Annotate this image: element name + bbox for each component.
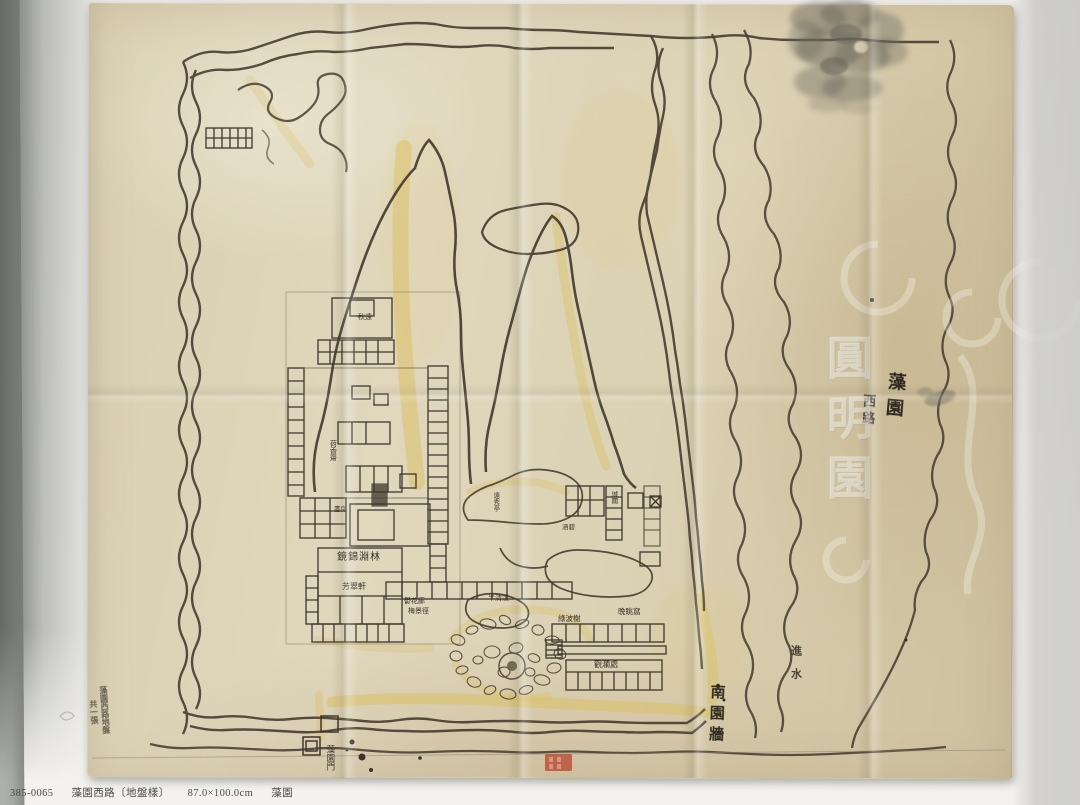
label-hall-guanlan: 觀瀾處 — [594, 661, 618, 669]
map-drawing — [0, 0, 1080, 805]
caption-title: 藻園西路〔地盤樣〕 — [71, 788, 169, 799]
label-main-hall: 鏡錦淵林 — [337, 553, 381, 564]
label-pavilion-hanbi: 涵碧 — [562, 524, 575, 531]
crease-line — [92, 750, 1006, 758]
book-page — [19, 0, 1080, 805]
label-hall-banqingyang: 半清漾 — [488, 595, 509, 602]
caption-dimensions: 87.0×100.0cm — [188, 788, 254, 799]
garden-outer-wall — [179, 23, 939, 734]
label-studio-wantiao: 晚眺窩 — [618, 608, 641, 616]
mountain-ridges — [314, 140, 636, 492]
label-room-note: 書房 — [334, 506, 347, 513]
ink-dots — [346, 298, 908, 772]
corridor-ladder — [428, 366, 448, 544]
label-hall-fangcui: 芳翠軒 — [342, 583, 366, 591]
fold-crease — [682, 4, 708, 778]
ponds — [463, 470, 652, 629]
red-seal — [545, 754, 572, 771]
label-hall-north: 秋遠 — [358, 314, 372, 321]
gate-structure — [303, 716, 338, 755]
label-pavilion-lvbo: 綠波榭 — [558, 615, 581, 623]
caption: 385-0065 藻園西路〔地盤樣〕 87.0×100.0cm 藻園 — [10, 785, 308, 800]
label-gate-south: 藻園門 — [325, 745, 334, 771]
label-pavilion-yuanxiu: 遠秀亭 — [492, 492, 499, 512]
round-pavilion — [499, 653, 525, 679]
river-and-road-lines — [150, 30, 956, 755]
fold-crease — [857, 4, 883, 778]
label-gate-tower: 城關 — [610, 491, 617, 504]
ink-stain — [788, 0, 957, 409]
rockery — [449, 614, 567, 701]
map-paper — [87, 3, 1014, 779]
watermark-text: 圓明園 — [814, 334, 880, 514]
archival-map-photo: 秋遠 荷香齋 書房 鏡錦淵林 芳翠軒 鬱花廊 梅景徑 半清漾 遠秀亭 涵碧 城關… — [0, 0, 1080, 805]
yellow-highlights — [250, 80, 750, 738]
fold-crease-horizontal — [88, 384, 1012, 404]
hatched-block-topleft — [206, 128, 252, 148]
colonnade — [386, 582, 572, 599]
caption-collection: 藻園 — [271, 788, 293, 799]
page-right-shade — [1012, 0, 1080, 805]
label-studio-west: 荷香齋 — [329, 440, 336, 461]
building-complex-west — [286, 292, 572, 644]
annotation-wall-note: 南園牆 — [707, 684, 725, 748]
annotation-water-inlet: 進水 — [790, 645, 802, 691]
buildings-south — [546, 624, 666, 690]
label-path-meijing: 梅景徑 — [408, 608, 429, 615]
buildings-east — [566, 486, 661, 566]
pencil-mark — [60, 712, 74, 720]
annotation-left-note-col2: 共一張 — [88, 700, 98, 725]
fold-crease — [507, 4, 533, 778]
book-gutter-shadow — [0, 0, 104, 805]
fold-crease — [332, 4, 358, 778]
watermark-swirls — [826, 244, 1078, 594]
stream-topleft — [238, 74, 347, 172]
annotation-title-right-col1: 藻園 — [882, 371, 905, 424]
annotation-title-right-col2: 西路 — [859, 394, 874, 429]
caption-catalog-number: 385-0065 — [10, 788, 53, 799]
label-gallery-yuhua: 鬱花廊 — [404, 598, 425, 605]
annotation-left-note-col1: 藻園西路地盤 — [98, 686, 110, 734]
